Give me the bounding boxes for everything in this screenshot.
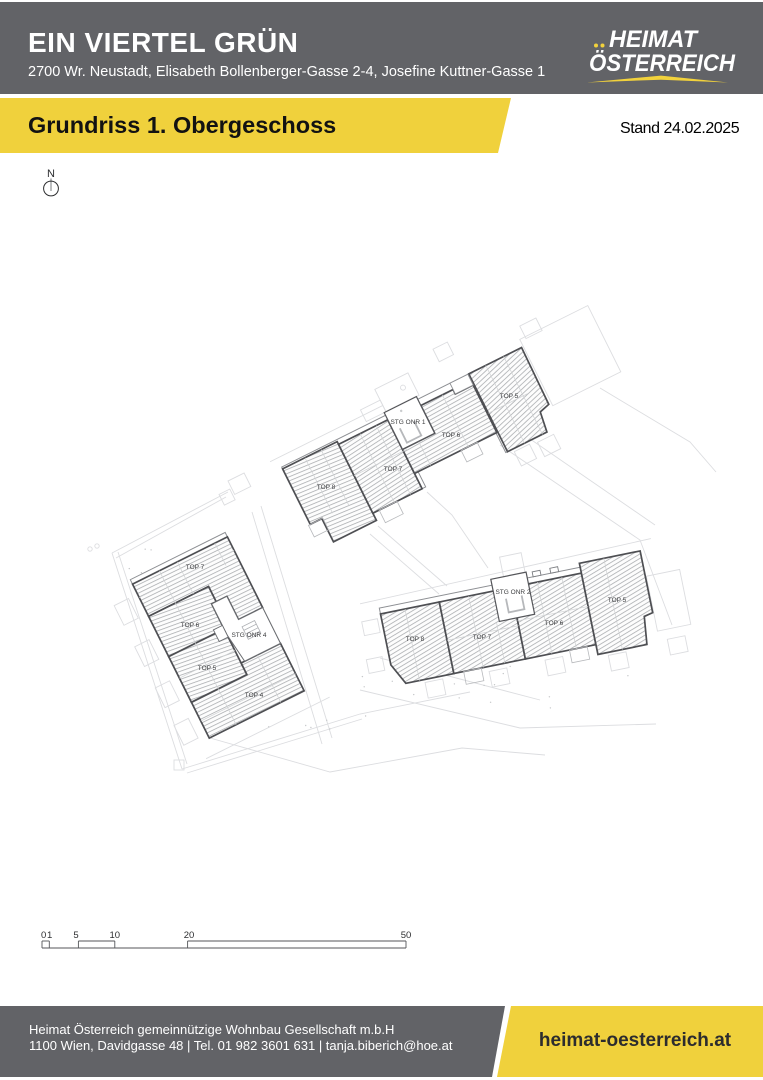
svg-text:20: 20 [184,930,195,941]
svg-text:TOP 6: TOP 6 [545,620,564,627]
svg-text:TOP 5: TOP 5 [500,393,519,400]
svg-text:TOP 7: TOP 7 [384,466,403,473]
svg-text:STG ONR 1: STG ONR 1 [390,419,425,426]
svg-text:50: 50 [401,930,412,941]
svg-text:TOP 5: TOP 5 [608,597,627,604]
svg-text:1: 1 [47,930,52,941]
svg-text:TOP 6: TOP 6 [181,622,200,629]
svg-text:TOP 7: TOP 7 [473,634,492,641]
svg-text:TOP 8: TOP 8 [317,484,336,491]
svg-text:STG ONR 2: STG ONR 2 [495,589,530,596]
svg-text:TOP 5: TOP 5 [198,665,217,672]
svg-text:5: 5 [73,930,78,941]
svg-text:TOP 6: TOP 6 [442,432,461,439]
svg-text:N: N [47,168,55,180]
svg-text:TOP 4: TOP 4 [245,692,264,699]
svg-text:TOP 8: TOP 8 [406,636,425,643]
svg-text:10: 10 [110,930,121,941]
svg-text:0: 0 [41,930,46,941]
svg-text:STG ONR 4: STG ONR 4 [231,632,266,639]
svg-text:TOP 7: TOP 7 [186,564,205,571]
